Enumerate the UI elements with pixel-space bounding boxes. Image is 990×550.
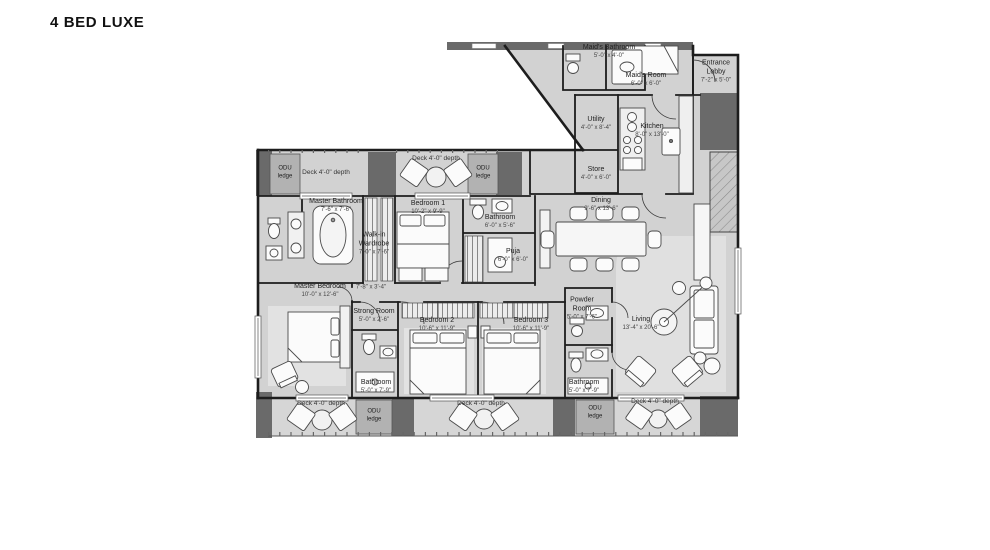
deck-5: Deck 4'-0" depth [631, 398, 679, 406]
label-bedroom-2: Bedroom 210'-6" x 11'-9" [419, 317, 455, 333]
label-puja: Puja6'-0" x 6'-0" [498, 248, 528, 264]
label-passage: 7'-8" x 3'-4" [356, 284, 386, 292]
label-bathroom-3: Bathroom5'-0" x 7'-9" [569, 379, 599, 395]
label-master-bedroom: Master Bedroom10'-0" x 12'-6" [278, 283, 362, 299]
odu-1: ODU ledge [272, 166, 298, 181]
label-dining: Dining9'-6" x 13'-6" [584, 197, 618, 213]
label-layer: Maid's Bathroom5'-0" x 4'-0"Maid's Room6… [0, 0, 990, 550]
deck-4: Deck 4'-0" depth [457, 400, 505, 408]
odu-2: ODU ledge [470, 166, 496, 181]
label-living: Living13'-4" x 20'-6" [623, 316, 660, 332]
deck-3: Deck 4'-0" depth [297, 400, 345, 408]
floorplan-canvas: 4 BED LUXE [0, 0, 990, 550]
label-powder-room: Powder Room5'-0" x 7'-6" [565, 297, 599, 322]
label-bathroom-1: Bathroom6'-0" x 5'-6" [485, 214, 515, 230]
label-entrance-lobby: Entrance Lobby7'-2" x 5'-0" [696, 60, 736, 85]
label-bathroom-2: Bathroom5'-0" x 7'-9" [361, 379, 391, 395]
label-utility: Utility4'-0" x 8'-4" [581, 116, 611, 132]
label-bedroom-1: Bedroom 110'-2" x 9'-9" [411, 200, 445, 216]
deck-2: Deck 4'-0" depth [412, 155, 460, 163]
label-maids-room: Maid's Room6'-0" x 6'-0" [626, 72, 667, 88]
label-store: Store4'-0" x 6'-0" [581, 166, 611, 182]
odu-3: ODU ledge [361, 409, 387, 424]
floorplan: Maid's Bathroom5'-0" x 4'-0"Maid's Room6… [0, 0, 990, 550]
deck-1: Deck 4'-0" depth [302, 169, 350, 177]
label-strong-room: Strong Room5'-0" x 2'-6" [350, 308, 398, 324]
label-kitchen: Kitchen8'-0" x 13'-0" [635, 123, 669, 139]
label-bedroom-3: Bedroom 310'-6" x 11'-9" [513, 317, 549, 333]
label-master-bathroom: Master Bathroom7'-6" x 7'-6" [300, 198, 372, 214]
label-walkin-wardrobe: Walk-in Wardrobe7'-0" x 7'-6" [355, 232, 393, 257]
odu-4: ODU ledge [582, 406, 608, 421]
label-maids-bathroom: Maid's Bathroom5'-0" x 4'-0" [580, 44, 638, 60]
